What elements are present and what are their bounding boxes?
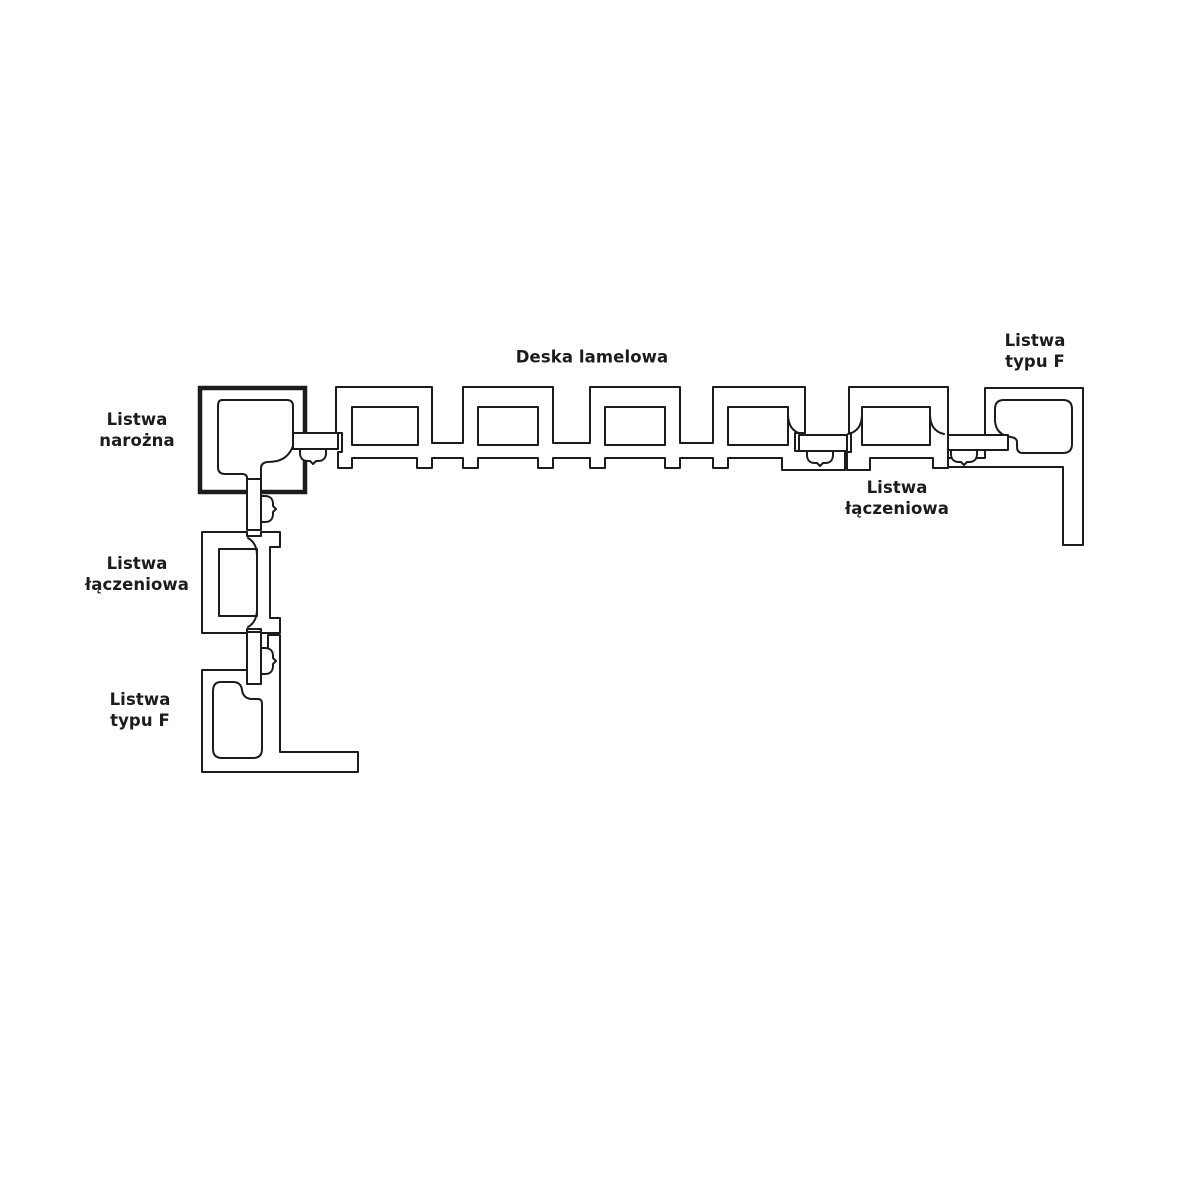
f-strip-top-right-profile	[948, 388, 1083, 545]
label-connector-strip-left: Listwa łączeniowa	[85, 553, 189, 595]
joint-tongues-and-clips	[247, 433, 1008, 684]
label-f-strip-top-right: Listwa typu F	[1005, 330, 1066, 372]
label-f-strip-bottom-left: Listwa typu F	[110, 689, 171, 731]
corner-strip-profile	[200, 388, 305, 492]
label-connector-strip-right: Listwa łączeniowa	[845, 477, 949, 519]
lamella-board-profile	[336, 387, 845, 470]
technical-drawing	[0, 0, 1200, 1200]
label-corner-strip: Listwa narożna	[99, 409, 175, 451]
lamella-board-profile-2	[847, 387, 948, 470]
connector-strip-left-profile	[202, 532, 280, 633]
label-deska-lamelowa: Deska lamelowa	[516, 346, 669, 367]
diagram-canvas: Deska lamelowa Listwa typu F Listwa naro…	[0, 0, 1200, 1200]
f-strip-bottom-left-profile	[202, 635, 358, 772]
